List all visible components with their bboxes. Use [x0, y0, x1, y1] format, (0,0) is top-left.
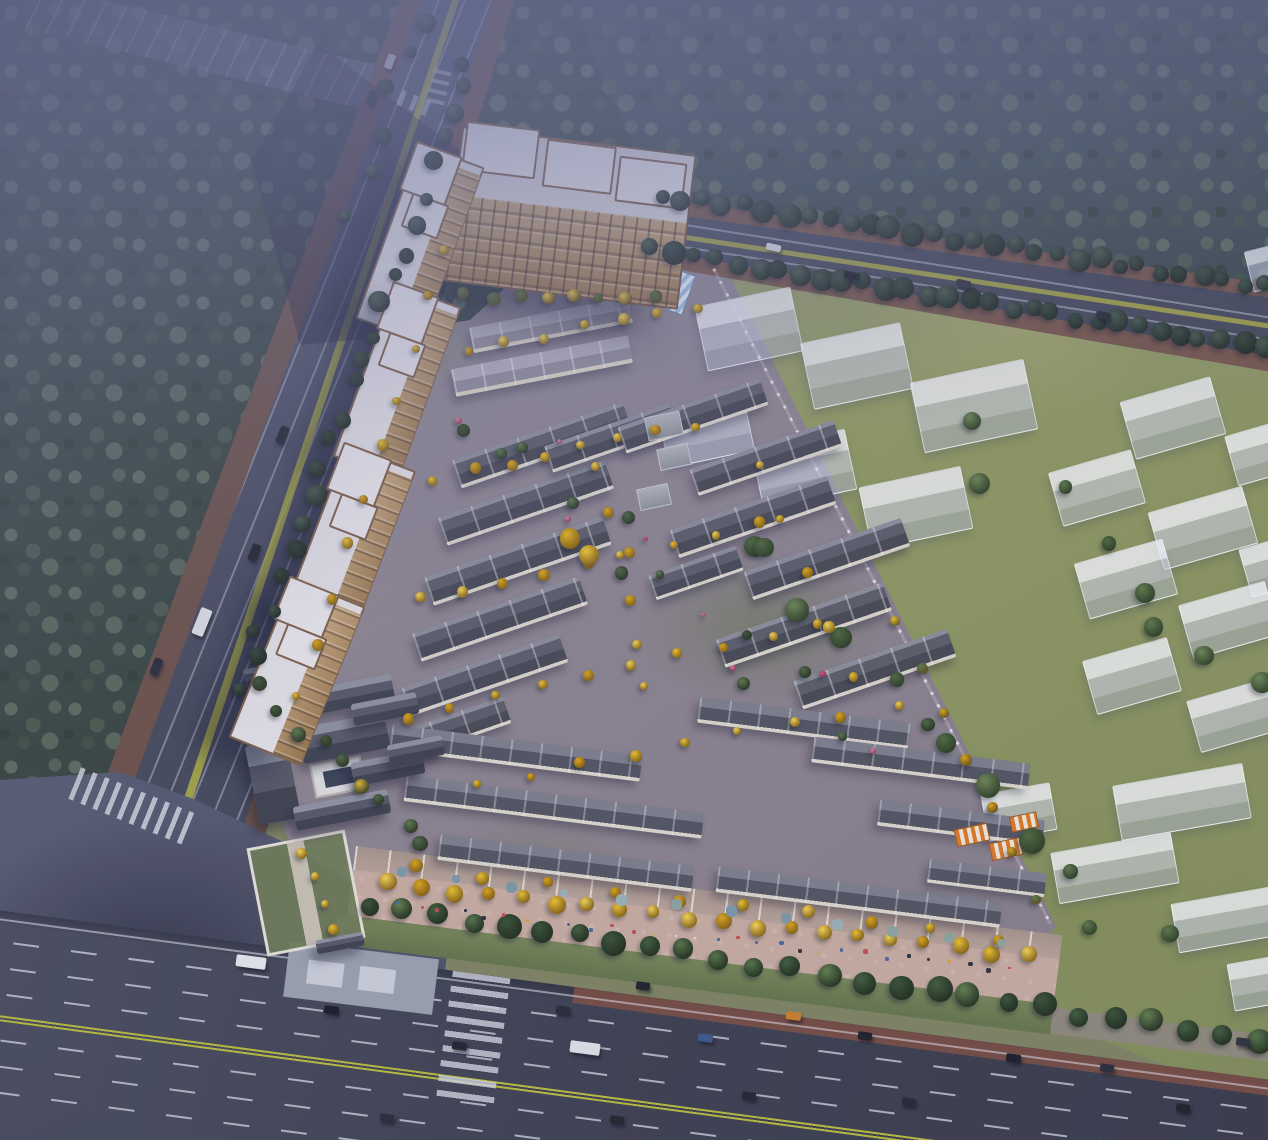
pedestrian-dot [589, 928, 593, 932]
tree [1000, 993, 1018, 1011]
tree [327, 594, 338, 605]
tree [410, 859, 423, 872]
tree [924, 223, 943, 242]
tree [779, 956, 799, 976]
stall-umbrella [506, 882, 517, 893]
tree [287, 540, 306, 559]
tree [403, 713, 415, 725]
tree [849, 672, 858, 681]
tree [927, 976, 953, 1002]
tree [328, 924, 339, 935]
pedestrian-dot [694, 937, 696, 939]
tree [412, 345, 420, 353]
tree [353, 351, 369, 367]
tree [851, 929, 863, 941]
tree [680, 738, 689, 747]
tree [754, 538, 773, 557]
tree [1008, 236, 1025, 253]
tree [853, 972, 876, 995]
tree [391, 898, 412, 919]
pedestrian-dot [567, 923, 570, 926]
tree [498, 336, 509, 347]
tree [312, 639, 324, 651]
tree [320, 735, 332, 747]
stall-umbrella [832, 919, 843, 930]
pedestrian-dot [675, 935, 677, 937]
tree [652, 308, 662, 318]
tree [955, 982, 980, 1007]
tree [321, 430, 337, 446]
tree [618, 292, 631, 305]
tree [515, 289, 528, 302]
tree [548, 896, 566, 914]
tree [368, 291, 389, 312]
tree [895, 701, 904, 710]
stall-umbrella [560, 889, 568, 897]
tree [630, 750, 642, 762]
pedestrian-dot [817, 953, 819, 955]
apartment-building-main [443, 126, 696, 310]
tree [1068, 313, 1084, 329]
flower-bush [557, 439, 562, 444]
tree [632, 640, 641, 649]
tree [342, 537, 353, 548]
vehicle [1176, 1103, 1191, 1113]
tree [1251, 672, 1268, 693]
pedestrian-dot [717, 938, 719, 940]
tree [491, 691, 499, 699]
tree [1129, 256, 1144, 271]
tree [574, 757, 585, 768]
tree [656, 570, 664, 578]
tree [838, 732, 846, 740]
vehicle [1100, 1063, 1115, 1073]
tree [1021, 946, 1037, 962]
tree [889, 976, 914, 1001]
tree [769, 632, 778, 641]
aerial-masterplan-render [0, 0, 1268, 1140]
tree [790, 717, 800, 727]
tree [1177, 1020, 1199, 1042]
tree [823, 210, 839, 226]
tree [361, 898, 379, 916]
tree [976, 773, 1001, 798]
tree [719, 643, 728, 652]
tree [987, 802, 998, 813]
tree [768, 260, 787, 279]
tree [424, 151, 443, 170]
tree [446, 885, 463, 902]
tree [694, 190, 710, 206]
tree [1153, 266, 1169, 282]
tree [423, 291, 433, 301]
tree [917, 936, 929, 948]
tree [866, 916, 879, 929]
stall-umbrella [781, 913, 791, 923]
flower-bush [870, 748, 876, 754]
tree [543, 877, 553, 887]
tree [591, 462, 600, 471]
tree [413, 879, 430, 896]
tree [560, 528, 580, 548]
tree [576, 441, 584, 449]
tree [408, 216, 426, 234]
tree [953, 937, 970, 954]
tree [712, 531, 720, 539]
tree [496, 448, 507, 459]
tree [580, 320, 589, 329]
tree [457, 586, 468, 597]
tree [751, 200, 774, 223]
tree [778, 204, 802, 228]
tree [708, 950, 728, 970]
tree [487, 292, 501, 306]
tree [542, 292, 555, 305]
tree [647, 905, 660, 918]
tree [672, 648, 682, 658]
tree [1019, 828, 1045, 854]
tree [901, 223, 924, 246]
tree [1214, 272, 1229, 287]
flower-bush [819, 671, 825, 677]
tree [1189, 331, 1205, 347]
tree [960, 754, 972, 766]
tree [233, 683, 246, 696]
tree [790, 265, 811, 286]
tree [379, 873, 397, 891]
tree [473, 780, 481, 788]
tree [415, 592, 425, 602]
tree [531, 921, 553, 943]
tree [673, 938, 694, 959]
tree [538, 569, 550, 581]
vehicle [1236, 1037, 1251, 1047]
pedestrian-dot [907, 954, 910, 957]
tree [625, 595, 636, 606]
tree [737, 195, 752, 210]
tree [843, 214, 861, 232]
tree [377, 79, 394, 96]
tree [835, 712, 846, 723]
tree [936, 733, 956, 753]
roof-pod [542, 139, 617, 195]
tree [670, 541, 678, 549]
tree [367, 332, 380, 345]
tree [1063, 864, 1078, 879]
tree [737, 677, 750, 690]
pedestrian-dot [986, 968, 991, 973]
pedestrian-dot [435, 908, 439, 912]
pedestrian-dot [863, 949, 867, 953]
tree [1139, 1008, 1162, 1031]
tree [785, 598, 808, 621]
flower-bush [730, 665, 736, 671]
tree [1059, 480, 1073, 494]
tree [567, 497, 579, 509]
tree [1031, 895, 1040, 904]
tree [641, 238, 658, 255]
tree [1007, 847, 1017, 857]
vehicle [380, 1113, 395, 1123]
tree [538, 680, 548, 690]
tree [626, 660, 636, 670]
vehicle [902, 1097, 917, 1107]
pedestrian-dot [1008, 967, 1010, 969]
pedestrian-dot [396, 901, 399, 904]
tree [1234, 331, 1257, 354]
tree [583, 670, 594, 681]
tree [650, 425, 661, 436]
flower-bush [643, 537, 647, 541]
tree [640, 936, 660, 956]
tree [706, 249, 722, 265]
tree [579, 897, 594, 912]
stall-umbrella [671, 899, 682, 910]
tree [311, 872, 320, 881]
tree [1210, 329, 1230, 349]
flower-bush [565, 516, 571, 522]
tree [457, 287, 469, 299]
pedestrian-dot [947, 960, 951, 964]
tree [729, 256, 747, 274]
tree [540, 452, 550, 462]
tree [497, 914, 522, 939]
tree [786, 921, 798, 933]
tree [601, 931, 626, 956]
tree [876, 215, 900, 239]
pedestrian-dot [502, 913, 505, 916]
tree [1025, 244, 1042, 261]
tree [662, 241, 686, 265]
pedestrian-dot [464, 909, 467, 912]
pedestrian-dot [525, 919, 528, 922]
tree [1135, 583, 1155, 603]
vehicle [636, 981, 651, 991]
tree [686, 248, 700, 262]
tree [1256, 275, 1268, 291]
tree [1113, 260, 1127, 274]
tree [437, 128, 453, 144]
tree [670, 191, 690, 211]
tree [375, 127, 393, 145]
stall-umbrella [887, 926, 898, 937]
tree [439, 245, 449, 255]
tree [445, 104, 464, 123]
pedestrian-dot [968, 962, 973, 967]
tree [750, 920, 766, 936]
tree [270, 705, 282, 717]
tree [417, 13, 436, 32]
vehicle [610, 1115, 625, 1125]
tree [926, 923, 935, 932]
tree [1161, 925, 1178, 942]
tree [818, 964, 842, 988]
stall-umbrella [452, 875, 460, 883]
tree [801, 207, 817, 223]
tree [476, 872, 489, 885]
tree [579, 545, 599, 565]
tree [921, 718, 934, 731]
tree [392, 397, 400, 405]
tree [1170, 266, 1186, 282]
tree [516, 442, 527, 453]
tree [294, 515, 311, 532]
tree [456, 78, 471, 93]
tree [1194, 646, 1214, 666]
tree [737, 899, 749, 911]
stall-umbrella [397, 867, 408, 878]
vehicle [858, 1031, 873, 1041]
tree [427, 903, 448, 924]
stall-umbrella [944, 933, 954, 943]
stall-umbrella [726, 905, 737, 916]
tree [691, 423, 700, 432]
stall-umbrella [616, 894, 628, 906]
tree [517, 890, 529, 902]
tree [482, 887, 495, 900]
pedestrian-dot [736, 936, 740, 940]
tree [823, 621, 834, 632]
vehicle [556, 1005, 571, 1015]
tree [984, 234, 1006, 256]
tree [339, 210, 351, 222]
vehicle [742, 1091, 757, 1101]
tree [1091, 246, 1113, 268]
tree [754, 516, 766, 528]
tree [404, 819, 418, 833]
tree [306, 485, 327, 506]
tree [802, 567, 813, 578]
tree [1005, 301, 1022, 318]
tree [412, 836, 427, 851]
tree [507, 460, 518, 471]
tree [1144, 617, 1163, 636]
tree [354, 779, 369, 794]
tree [274, 568, 289, 583]
tree [979, 292, 999, 312]
tree [890, 672, 905, 687]
tree [365, 164, 380, 179]
tree [744, 958, 763, 977]
